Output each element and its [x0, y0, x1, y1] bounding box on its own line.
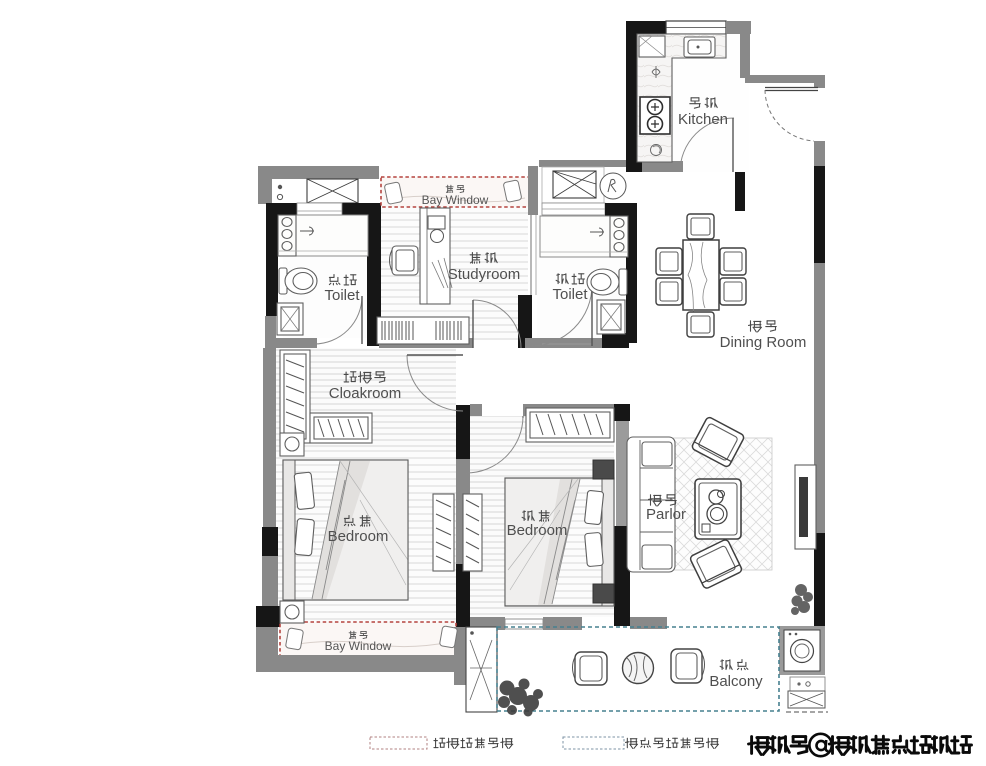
svg-text:Cloakroom: Cloakroom	[329, 385, 402, 402]
svg-text:Parlor: Parlor	[646, 506, 686, 523]
svg-text:Balcony: Balcony	[709, 673, 763, 690]
svg-text:Toilet: Toilet	[552, 286, 588, 303]
svg-text:Kitchen: Kitchen	[678, 111, 728, 128]
svg-text:Dining Room: Dining Room	[720, 334, 807, 351]
svg-text:Studyroom: Studyroom	[448, 266, 521, 283]
svg-text:Bay Window: Bay Window	[325, 639, 392, 653]
svg-text:Bedroom: Bedroom	[328, 528, 389, 545]
svg-text:Toilet: Toilet	[324, 287, 360, 304]
svg-text:Bedroom: Bedroom	[507, 522, 568, 539]
svg-text:Bay Window: Bay Window	[422, 193, 489, 207]
